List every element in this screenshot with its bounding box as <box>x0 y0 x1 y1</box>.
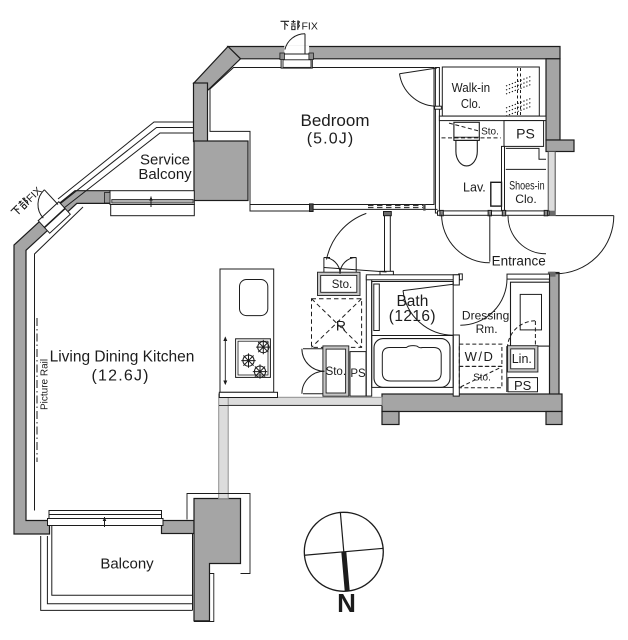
svg-text:(5.0J): (5.0J) <box>307 131 355 148</box>
svg-text:Clo.: Clo. <box>461 97 481 111</box>
svg-text:Sto.: Sto. <box>332 279 352 291</box>
svg-text:FIX: FIX <box>302 21 318 33</box>
svg-text:Walk-in: Walk-in <box>452 81 491 95</box>
svg-text:W/D: W/D <box>465 349 495 364</box>
svg-text:Living Dining Kitchen: Living Dining Kitchen <box>50 349 195 366</box>
svg-text:PS: PS <box>350 368 366 380</box>
svg-text:PS: PS <box>514 378 532 393</box>
svg-text:Sto.: Sto. <box>473 373 491 384</box>
svg-text:Sto.: Sto. <box>326 366 346 378</box>
svg-text:Lin.: Lin. <box>512 352 532 366</box>
svg-text:(1216): (1216) <box>389 308 436 325</box>
svg-text:Picture Rail: Picture Rail <box>40 359 51 410</box>
svg-text:Dressing: Dressing <box>462 309 509 323</box>
svg-text:Entrance: Entrance <box>492 254 546 269</box>
svg-text:Rm.: Rm. <box>476 322 498 336</box>
svg-text:Clo.: Clo. <box>515 192 537 206</box>
svg-text:(12.6J): (12.6J) <box>91 368 149 385</box>
svg-text:Lav.: Lav. <box>463 180 486 194</box>
svg-text:Balcony: Balcony <box>100 555 154 572</box>
svg-text:N: N <box>337 588 356 618</box>
svg-text:R: R <box>336 318 346 334</box>
svg-text:Balcony: Balcony <box>138 166 192 183</box>
svg-text:Shoes-in: Shoes-in <box>509 179 545 193</box>
svg-text:PS: PS <box>516 126 535 142</box>
svg-text:Sto.: Sto. <box>481 127 499 138</box>
svg-text:Bedroom: Bedroom <box>301 111 370 130</box>
